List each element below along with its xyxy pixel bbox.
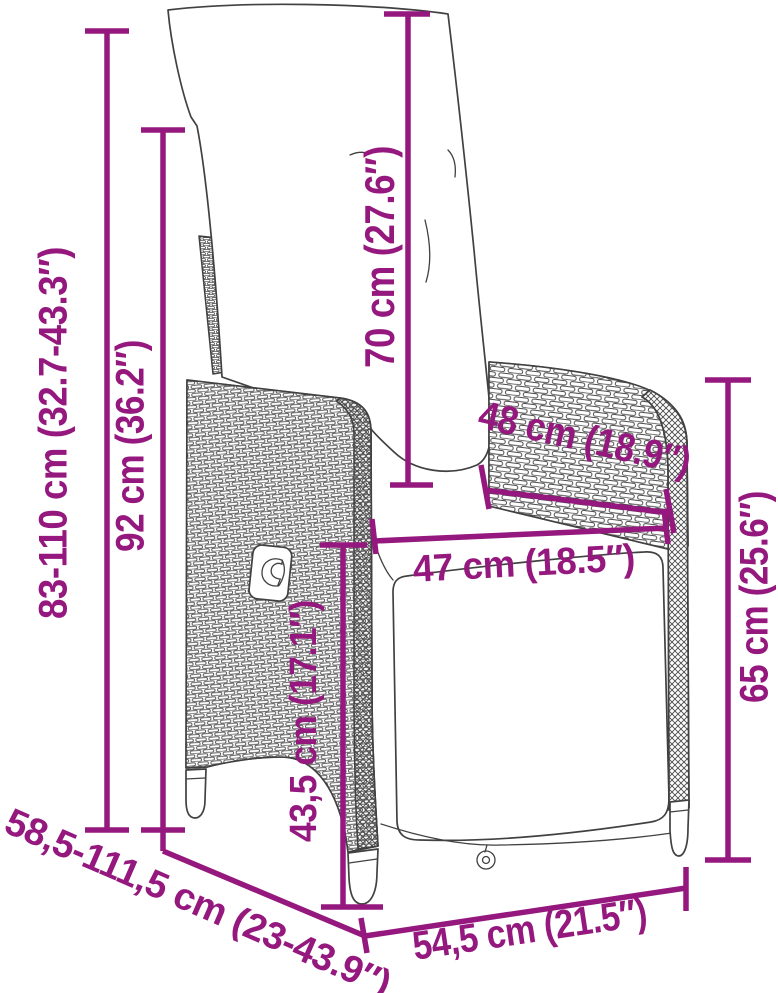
dim-label: 92 cm (36.2″) bbox=[109, 340, 153, 552]
dim-tick bbox=[372, 519, 376, 554]
dimension-total-depth: 58,5-111,5 cm (23-43.9″) bbox=[0, 801, 397, 993]
dim-label: 58,5-111,5 cm (23-43.9″) bbox=[0, 801, 397, 993]
front-right-leg bbox=[670, 800, 689, 856]
backrest-panel-weave bbox=[186, 380, 378, 852]
rear-left-leg bbox=[186, 769, 206, 818]
dim-label: 65 cm (25.6″) bbox=[733, 491, 777, 703]
dim-label: 54,5 cm (21.5″) bbox=[410, 890, 650, 968]
hand-hole bbox=[248, 544, 292, 602]
dim-label: 43,5 cm (17.1″) bbox=[283, 600, 325, 842]
hand-hole-cutout bbox=[248, 544, 292, 602]
dimension-armrest-height: 65 cm (25.6″) bbox=[705, 380, 777, 860]
caster-wheel bbox=[477, 845, 495, 869]
seat-cushion bbox=[393, 552, 669, 840]
dim-label: 83-110 cm (32.7-43.3″) bbox=[32, 247, 76, 619]
front-left-leg-cap bbox=[348, 849, 378, 904]
dimension-seat-depth: 54,5 cm (21.5″) bbox=[361, 867, 686, 969]
dimension-backrest-height: 92 cm (36.2″) bbox=[109, 130, 185, 851]
dim-label: 70 cm (27.6″) bbox=[356, 146, 403, 368]
product-dimension-diagram: 83-110 cm (32.7-43.3″) 92 cm (36.2″) 70 … bbox=[0, 0, 778, 993]
dim-tick bbox=[481, 465, 489, 509]
diagram-canvas: 83-110 cm (32.7-43.3″) 92 cm (36.2″) 70 … bbox=[0, 0, 778, 993]
